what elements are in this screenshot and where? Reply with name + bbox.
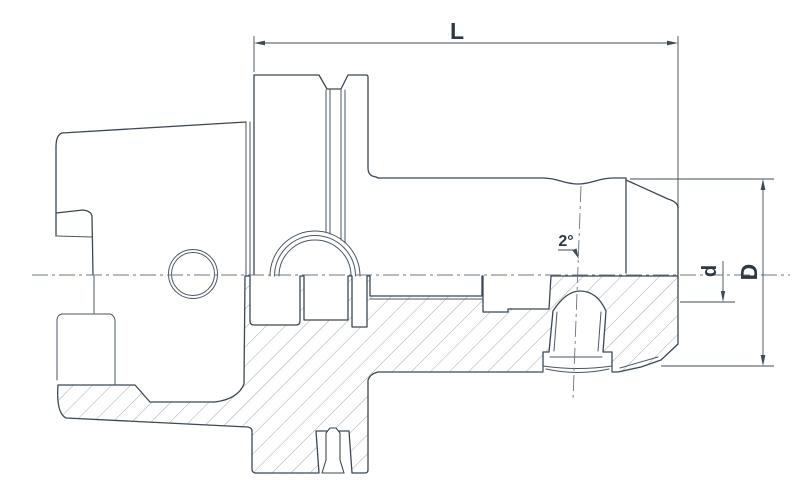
flange-groove-tab <box>322 428 344 473</box>
tool-bore-wall-right <box>598 312 601 351</box>
neck-top-edge <box>378 178 626 184</box>
drive-notch <box>56 210 93 275</box>
technical-drawing-page: L D d 2° <box>0 0 812 503</box>
side-hole-outer <box>169 250 218 299</box>
flange-arc-inner <box>279 240 351 276</box>
dimension-label-L: L <box>450 18 464 44</box>
arrowhead-top <box>761 179 766 190</box>
tool-holder-drawing: L D d 2° <box>0 0 812 503</box>
bore-exit-lens-lower <box>546 369 609 373</box>
tool-bore-wall-left <box>554 312 557 351</box>
angle-label: 2° <box>558 233 573 250</box>
part-outline-upper <box>56 75 678 299</box>
section-hatch-lower <box>58 276 678 473</box>
dimension-label-D: D <box>736 264 762 281</box>
shank-left-corner <box>56 133 62 147</box>
dimension-bore-d: d <box>680 261 735 302</box>
arrowhead-bottom <box>761 355 766 366</box>
bore-exit-lens-upper <box>543 366 612 369</box>
angle-annotation-2deg: 2° <box>558 233 579 259</box>
taper-top-edge <box>62 122 246 133</box>
flange-arc-outer <box>270 231 360 276</box>
nose-taper-edge <box>626 180 678 208</box>
section-body <box>58 276 678 473</box>
dimension-label-d: d <box>699 265 721 277</box>
flange-outline <box>254 75 378 275</box>
drive-notch-inner <box>57 236 92 237</box>
shank-end-face-lower <box>57 314 62 380</box>
shank-slot-floor <box>62 314 115 384</box>
tilted-bore-axis <box>573 186 581 400</box>
arrowhead-right <box>667 41 678 46</box>
side-hole-inner <box>172 253 215 296</box>
arrowhead-d <box>721 291 725 302</box>
arrowhead-left <box>254 41 265 46</box>
